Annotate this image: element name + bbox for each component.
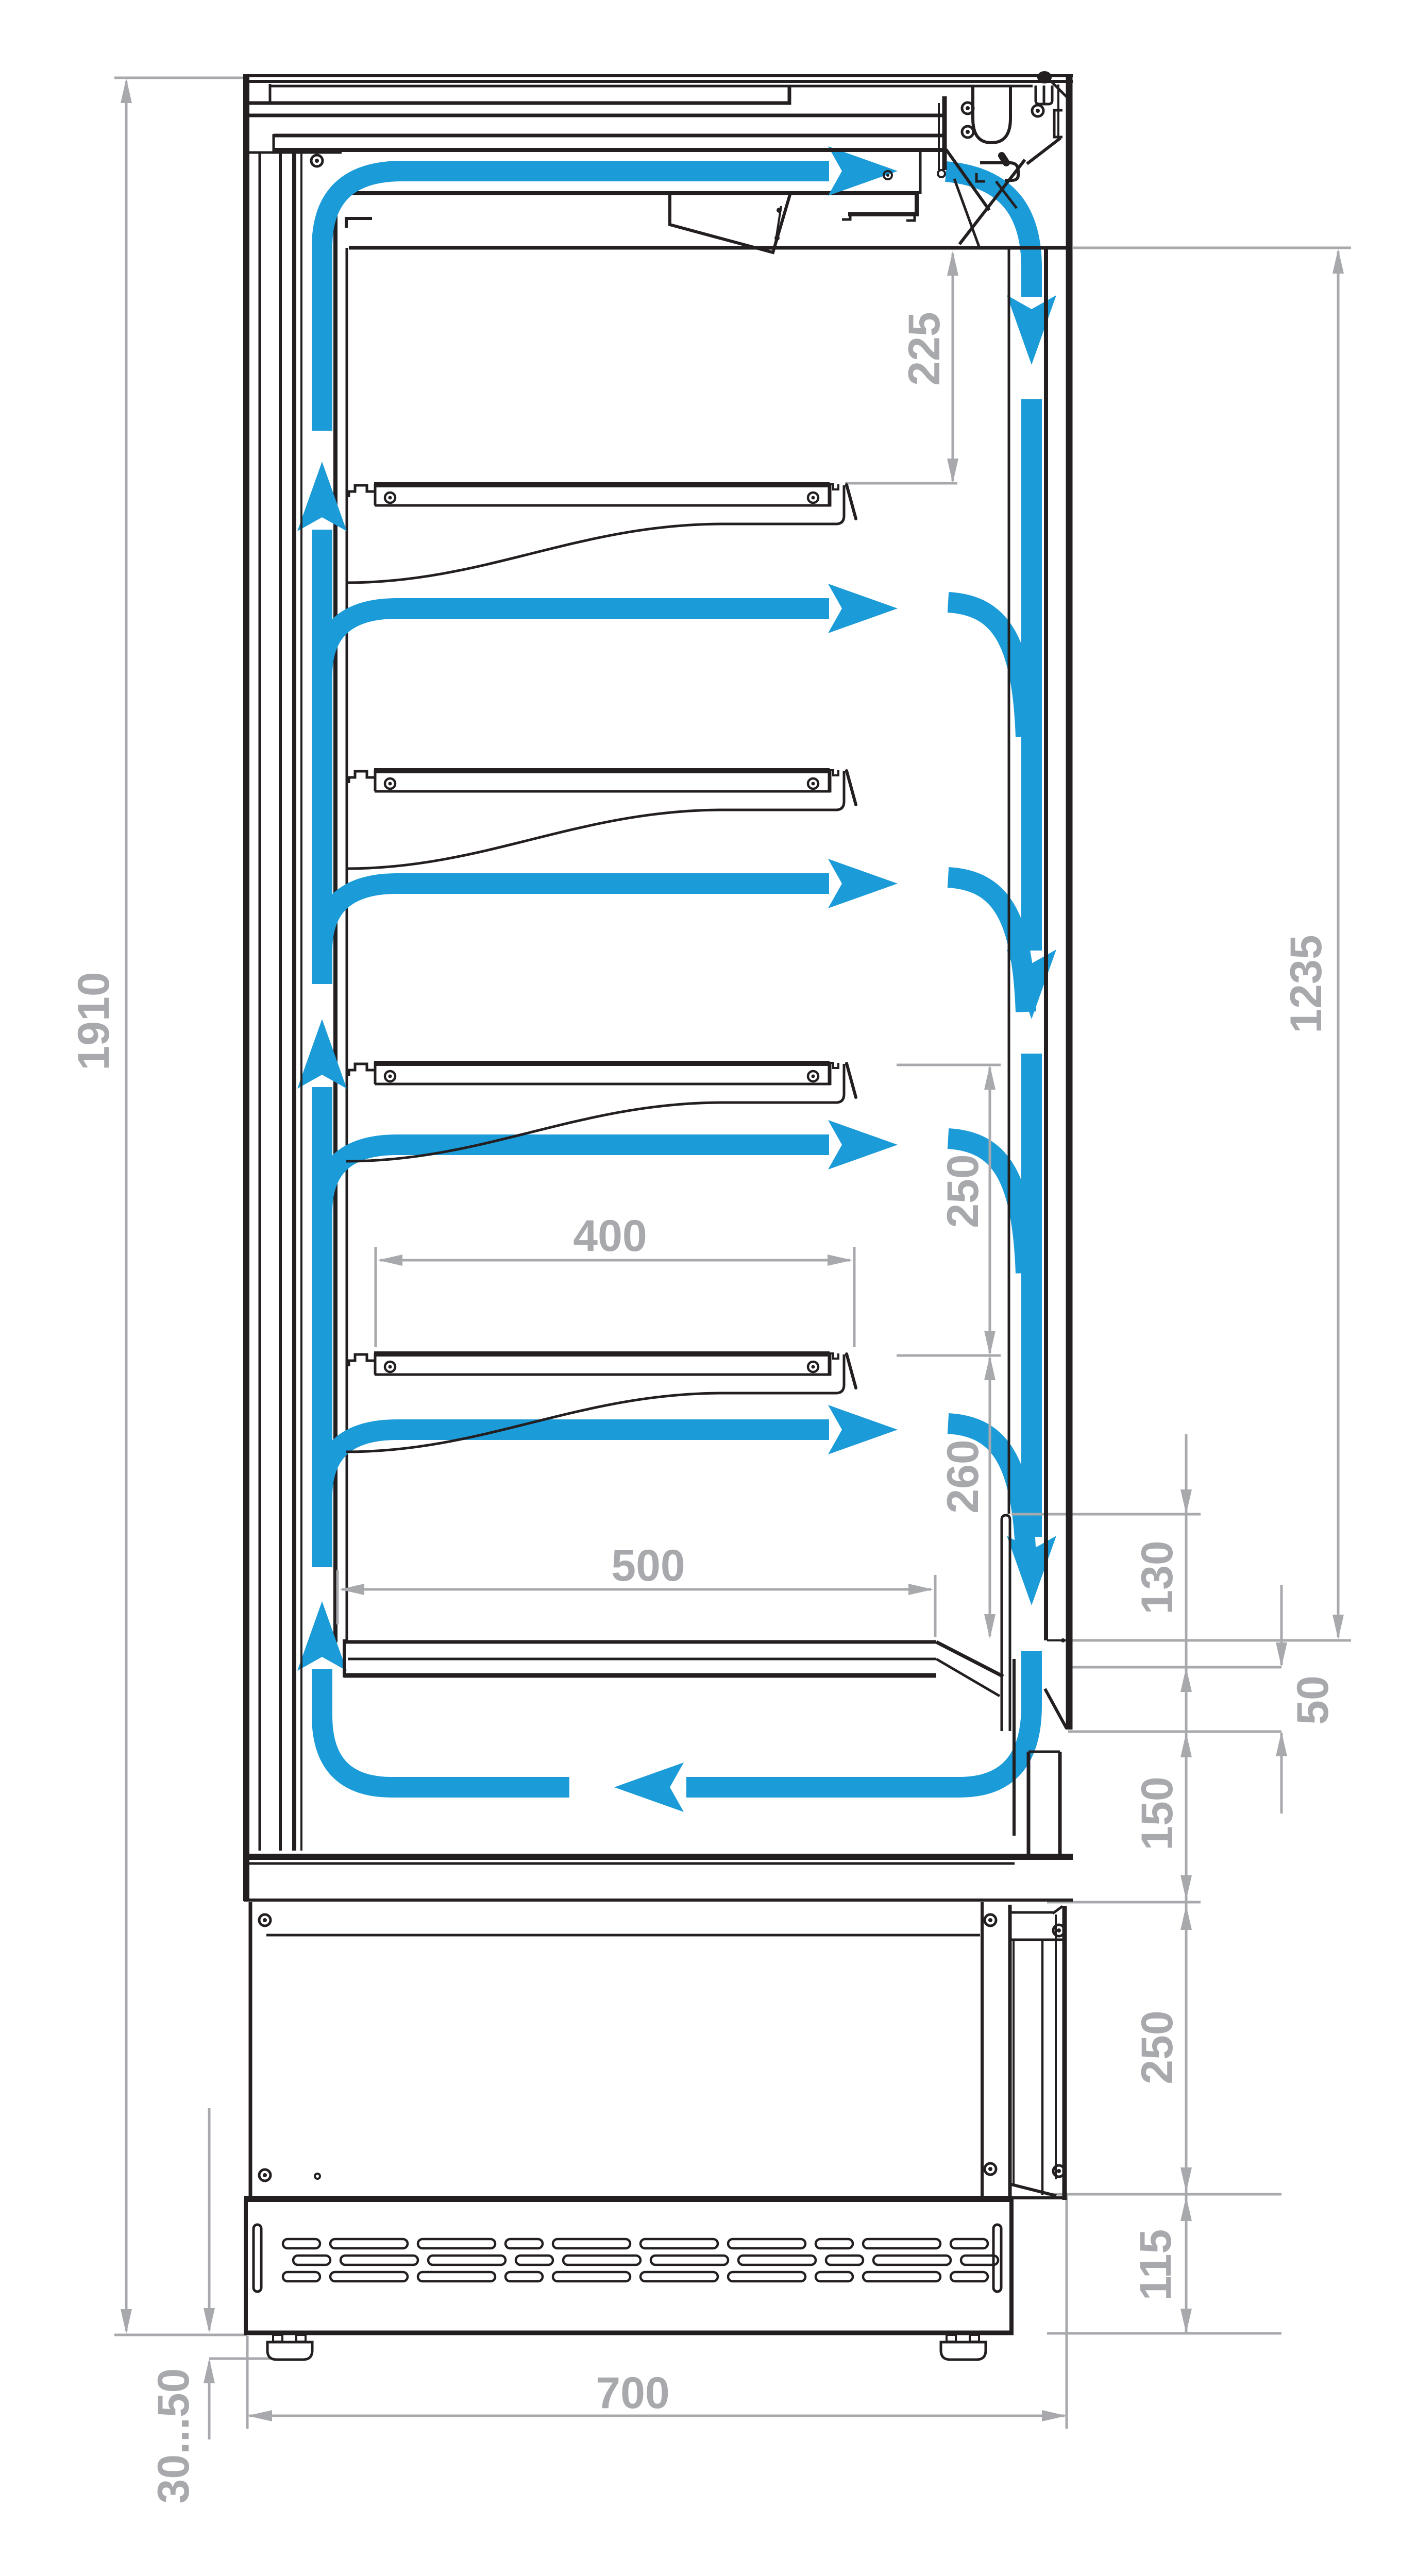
svg-text:250: 250	[1133, 2010, 1182, 2084]
svg-text:500: 500	[611, 1541, 685, 1590]
svg-text:700: 700	[596, 2368, 670, 2418]
svg-text:150: 150	[1133, 1776, 1182, 1851]
svg-text:130: 130	[1133, 1540, 1182, 1615]
svg-text:30...50: 30...50	[149, 2368, 198, 2504]
svg-text:225: 225	[900, 312, 949, 386]
svg-text:260: 260	[938, 1439, 988, 1514]
svg-text:1910: 1910	[69, 972, 119, 1070]
svg-text:400: 400	[573, 1211, 647, 1261]
svg-text:1235: 1235	[1281, 935, 1331, 1033]
svg-text:50: 50	[1288, 1675, 1338, 1725]
svg-text:250: 250	[938, 1154, 988, 1228]
svg-text:115: 115	[1131, 2229, 1180, 2301]
